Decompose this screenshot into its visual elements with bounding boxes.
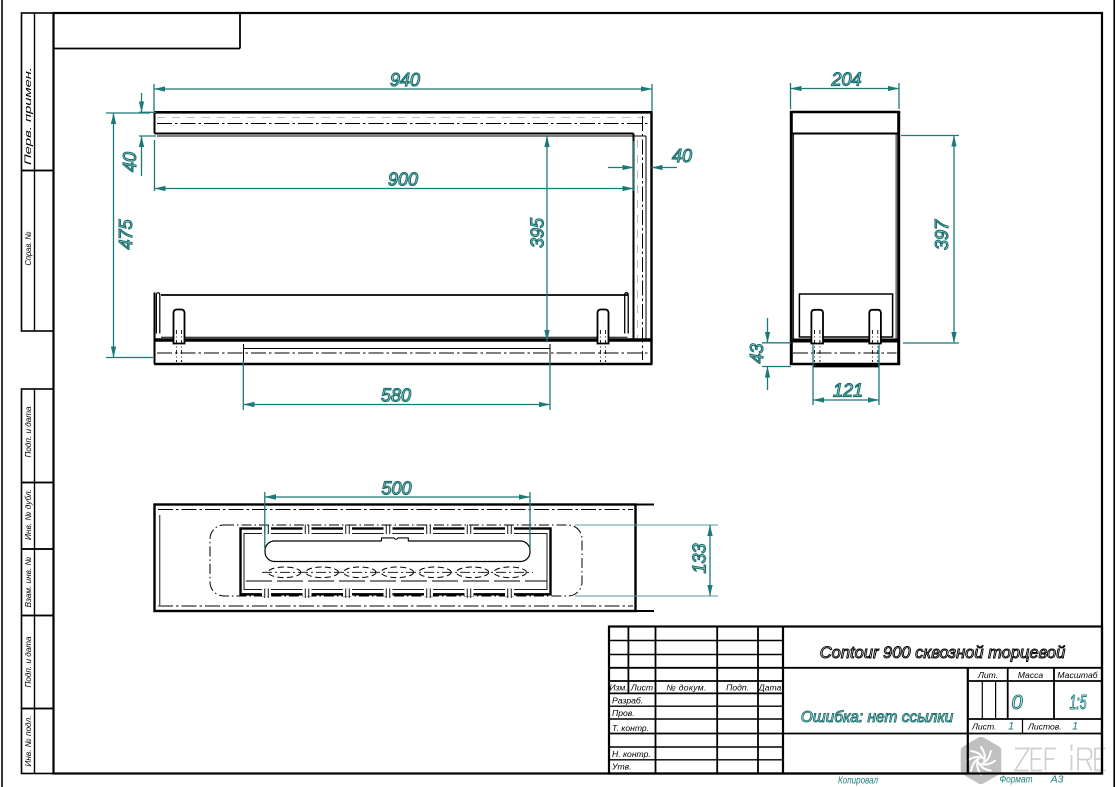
svg-text:580: 580 (381, 386, 411, 406)
svg-text:Contour 900 сквозной торцевой: Contour 900 сквозной торцевой (820, 644, 1066, 662)
svg-text:Масштаб: Масштаб (1057, 670, 1098, 680)
svg-text:Подп. и дата: Подп. и дата (23, 406, 33, 457)
svg-text:Подп.: Подп. (726, 683, 749, 693)
svg-text:1:5: 1:5 (1070, 692, 1088, 714)
svg-text:1: 1 (1072, 721, 1078, 733)
svg-text:475: 475 (116, 219, 136, 250)
svg-text:Дата: Дата (758, 683, 782, 693)
svg-text:Изм.: Изм. (609, 683, 627, 693)
svg-text:0: 0 (1011, 692, 1022, 714)
svg-text:397: 397 (932, 219, 952, 250)
svg-text:Н. контр.: Н. контр. (612, 749, 651, 759)
svg-text:1: 1 (1008, 721, 1014, 733)
svg-text:Инв. № подл.: Инв. № подл. (23, 716, 33, 767)
svg-text:Разраб.: Разраб. (612, 695, 643, 705)
svg-text:Масса: Масса (1018, 670, 1044, 680)
svg-text:Взам. инв. №: Взам. инв. № (23, 557, 33, 608)
svg-text:Утв.: Утв. (611, 762, 632, 772)
svg-text:121: 121 (833, 381, 863, 401)
svg-text:Копировал: Копировал (838, 775, 878, 787)
svg-text:500: 500 (381, 479, 411, 499)
svg-text:395: 395 (528, 217, 548, 248)
svg-text:Подп. и дата: Подп. и дата (23, 636, 33, 687)
svg-text:Справ. №: Справ. № (23, 232, 33, 266)
svg-text:900: 900 (388, 170, 418, 190)
svg-text:Лит.: Лит. (977, 670, 998, 680)
svg-text:А3: А3 (1050, 774, 1064, 786)
svg-text:43: 43 (747, 343, 767, 363)
svg-text:Инв. № дубл.: Инв. № дубл. (23, 489, 33, 540)
svg-text:Пров.: Пров. (612, 708, 635, 718)
svg-text:204: 204 (830, 70, 861, 90)
svg-text:Т. контр.: Т. контр. (612, 723, 649, 733)
svg-text:Листов.: Листов. (1027, 722, 1062, 732)
svg-text:Лист: Лист (630, 683, 653, 693)
svg-text:133: 133 (690, 543, 710, 573)
svg-text:40: 40 (672, 146, 692, 166)
svg-text:Лист.: Лист. (971, 722, 996, 732)
svg-text:40: 40 (120, 152, 140, 172)
svg-text:940: 940 (390, 70, 420, 90)
svg-text:Перв. примен.: Перв. примен. (23, 67, 33, 165)
svg-text:Ошибка: нет ссылки: Ошибка: нет ссылки (801, 709, 954, 726)
svg-text:№ докум.: № докум. (666, 683, 706, 693)
svg-text:Формат: Формат (1000, 774, 1033, 786)
